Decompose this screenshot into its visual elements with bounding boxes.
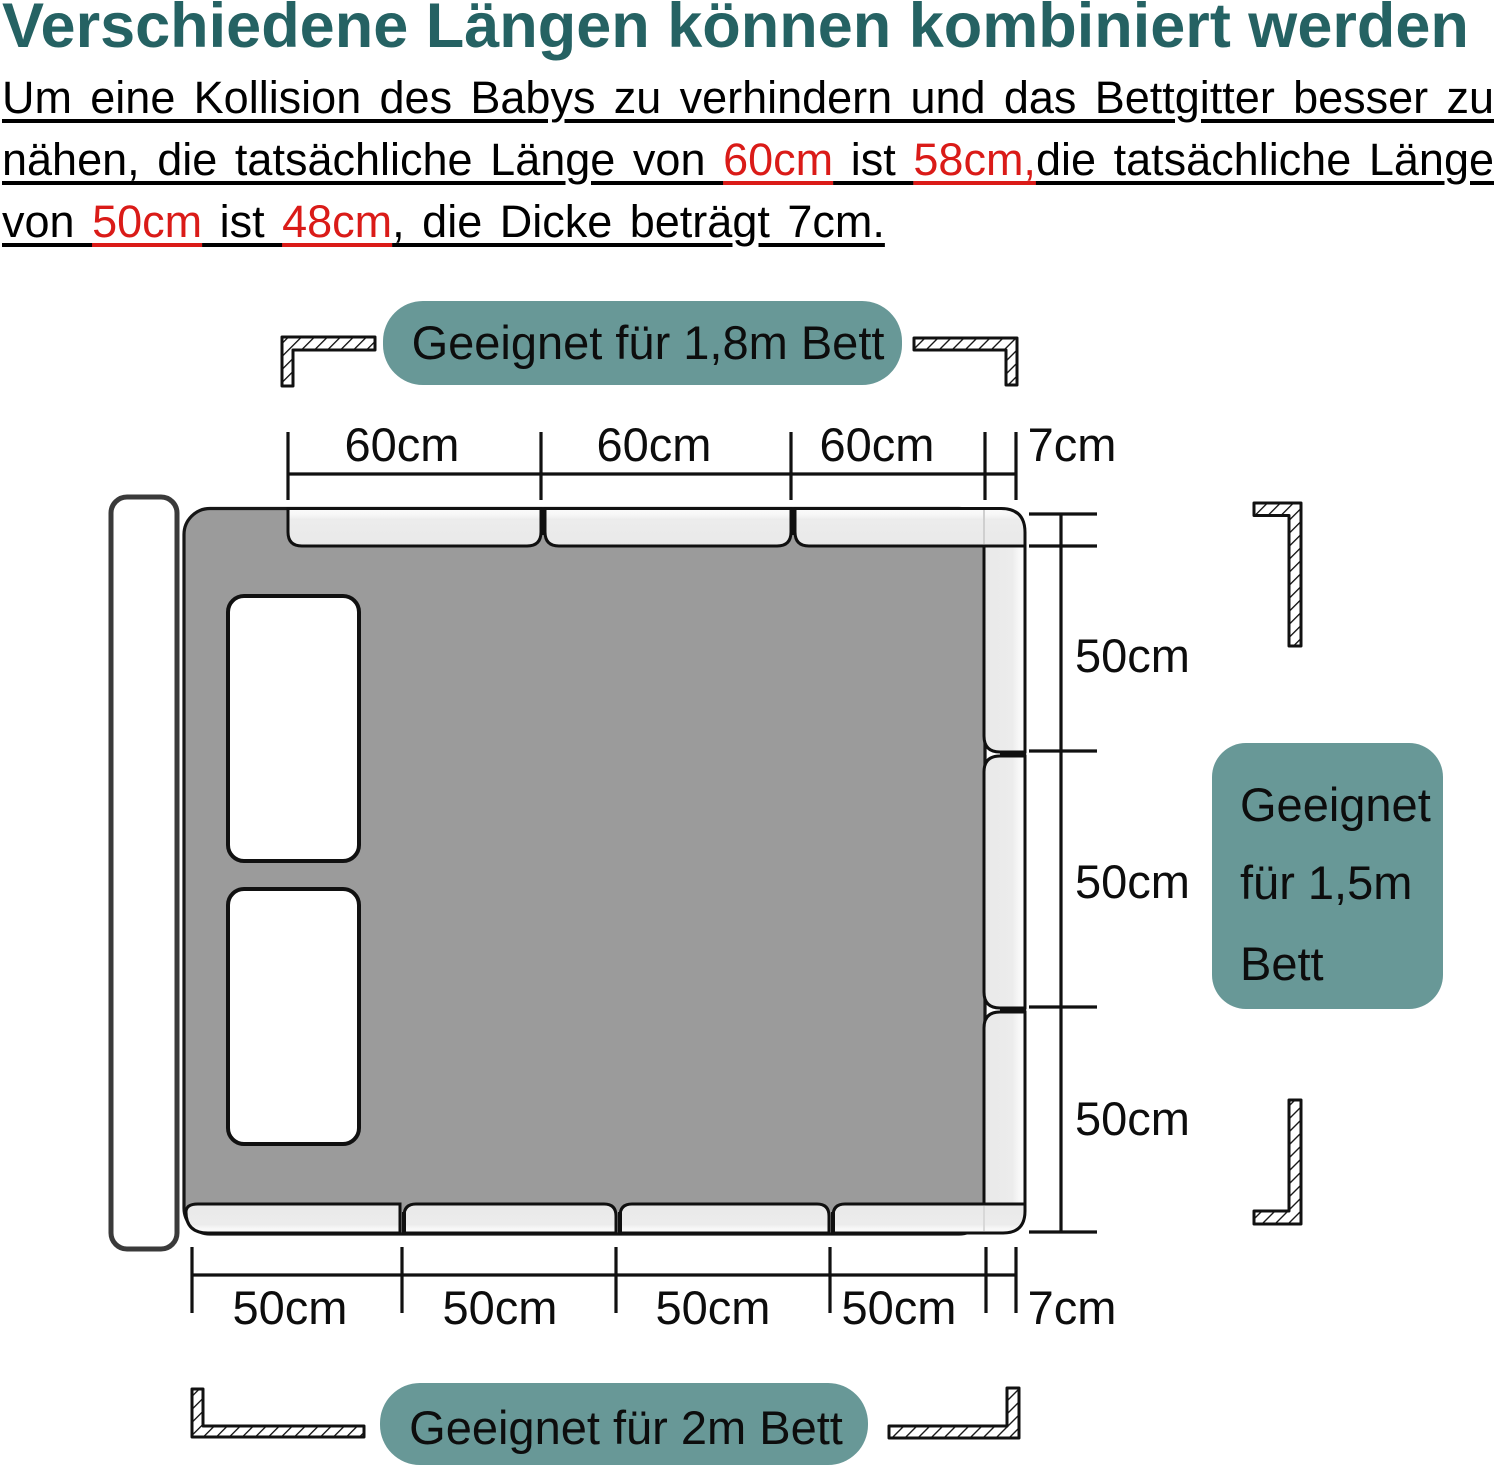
svg-text:50cm: 50cm bbox=[842, 1281, 957, 1334]
svg-text:60cm: 60cm bbox=[345, 418, 460, 471]
svg-text:Bett: Bett bbox=[1240, 937, 1324, 990]
svg-text:50cm: 50cm bbox=[1075, 1092, 1190, 1145]
svg-text:50cm: 50cm bbox=[1075, 629, 1190, 682]
svg-text:Geeignet für 1,8m Bett: Geeignet für 1,8m Bett bbox=[412, 316, 885, 369]
svg-text:50cm: 50cm bbox=[1075, 855, 1190, 908]
svg-text:Geeignet: Geeignet bbox=[1240, 778, 1431, 831]
svg-text:für 1,5m: für 1,5m bbox=[1240, 856, 1412, 909]
svg-text:50cm: 50cm bbox=[233, 1281, 348, 1334]
svg-text:7cm: 7cm bbox=[1028, 1281, 1117, 1334]
svg-text:50cm: 50cm bbox=[656, 1281, 771, 1334]
svg-text:60cm: 60cm bbox=[597, 418, 712, 471]
svg-text:50cm: 50cm bbox=[443, 1281, 558, 1334]
svg-text:Geeignet für 2m Bett: Geeignet für 2m Bett bbox=[409, 1401, 843, 1454]
svg-text:7cm: 7cm bbox=[1028, 418, 1117, 471]
svg-text:60cm: 60cm bbox=[820, 418, 935, 471]
